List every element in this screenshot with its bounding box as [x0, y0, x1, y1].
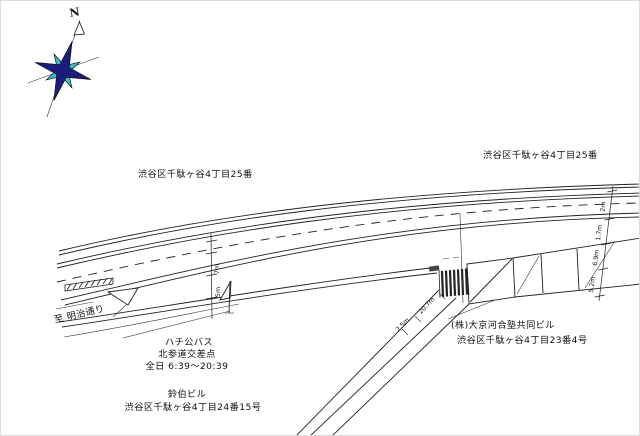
compass-rose: N — [26, 5, 100, 117]
building-right-address: 渋谷区千駄ヶ谷4丁目23番4号 — [457, 334, 587, 346]
side-street-dim-label-1: 20.7m — [417, 296, 436, 315]
building-divider-1 — [541, 254, 543, 293]
building-row-front — [513, 238, 640, 258]
side-street-dim-tick-2 — [415, 316, 421, 322]
road-centerline-dashed — [57, 203, 640, 282]
buildings-right — [448, 238, 640, 319]
side-street-edge-mid — [309, 298, 456, 436]
building-bottom-name: 鈴伯ビル — [168, 388, 206, 400]
building-bottom-address: 渋谷区千駄ヶ谷4丁目24番15号 — [125, 401, 262, 413]
right-dim-label-4: 5.2m — [588, 276, 597, 293]
road-edge-north-outer — [59, 184, 640, 251]
site-map-canvas: N — [1, 1, 640, 436]
side-street-dim-label-2: 2.5m — [395, 317, 411, 333]
building-row-rear — [515, 284, 640, 297]
main-road-lines — [56, 184, 640, 337]
road-curb-south — [61, 213, 640, 300]
right-dim-label-3: 6.9m — [592, 249, 601, 266]
building-divider-2 — [577, 249, 579, 290]
block-label-upper-right: 渋谷区千駄ヶ谷4丁目25番 — [483, 149, 598, 161]
building-cell-diagonal-1 — [517, 256, 539, 294]
right-dim-label-2: 1.7m — [595, 224, 604, 241]
side-street: 20.7m 2.5m — [295, 290, 469, 436]
stop-line-mark — [429, 265, 440, 271]
hatched-island — [65, 278, 113, 291]
compass-needle-arrowhead — [74, 22, 85, 35]
bus-stop-flag-icon — [108, 288, 138, 305]
stop-dash-2 — [453, 257, 459, 258]
compass-north-label: N — [69, 5, 81, 20]
block-label-upper-left: 渋谷区千駄ヶ谷4丁目25番 — [138, 168, 253, 180]
compass-star-primary — [26, 33, 100, 109]
right-dimension-stack: 2m 1.7m 6.9m 5.2m — [588, 186, 617, 301]
bus-stop-hours: 全日 6:39～20:39 — [146, 360, 229, 372]
right-dim-label-1: 2m — [599, 201, 607, 212]
road-curb-north — [57, 193, 640, 264]
bus-stop-flag-tail — [113, 304, 127, 317]
bus-stop-name: ハチ公バス — [165, 337, 213, 348]
building-bottom-label-block: 鈴伯ビル 渋谷区千駄ヶ谷4丁目24番15号 — [125, 388, 262, 413]
crosswalk-stripes — [442, 269, 467, 297]
building-right-leader — [448, 300, 495, 319]
crosswalk-section-line — [460, 214, 463, 303]
sidewalk-property-line2 — [62, 273, 437, 327]
road-section-dimension: 7m 5m — [206, 233, 222, 319]
building-right-name: (株)大京河合塾共同ビル — [451, 319, 555, 331]
to-meiji-dori-label: 至 明治通り — [53, 302, 106, 325]
bus-stop-location: 北参道交差点 — [158, 348, 216, 360]
building-kawaijuku-diagonal — [470, 259, 512, 302]
survey-map-page: N — [0, 0, 640, 436]
road-section-label-1: 7m — [214, 264, 221, 274]
bus-stop-label-block: ハチ公バス 北参道交差点 全日 6:39～20:39 — [146, 337, 229, 372]
stop-dash-1 — [443, 258, 449, 259]
building-right-label-block: (株)大京河合塾共同ビル 渋谷区千駄ヶ谷4丁目23番4号 — [451, 319, 587, 346]
road-section-label-2: 5m — [215, 287, 222, 297]
